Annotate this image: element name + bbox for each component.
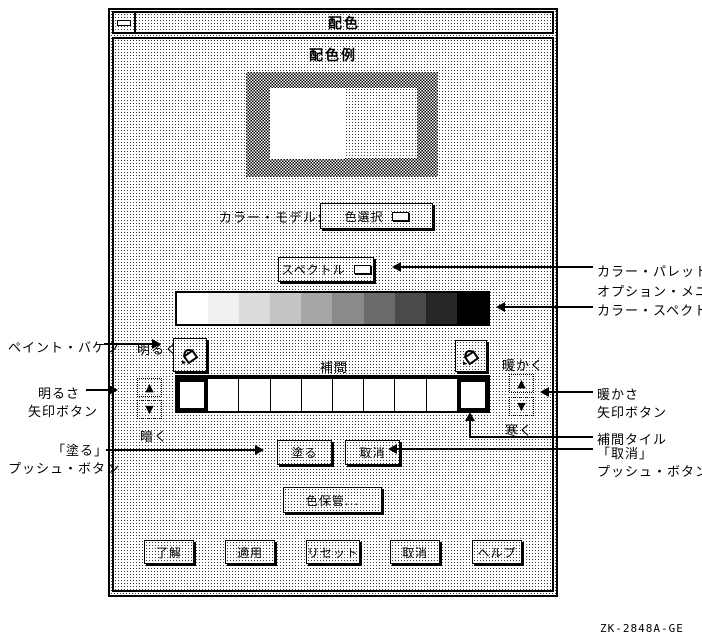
- interp-tile[interactable]: [364, 379, 394, 411]
- up-arrow-icon: ▲: [145, 382, 153, 393]
- callout-arrow-icon: [392, 262, 401, 272]
- annotation-warmth-arrows-line2: 矢印ボタン: [597, 402, 667, 421]
- warmth-up-button[interactable]: ▲: [509, 374, 534, 393]
- color-model-value: 色選択: [344, 208, 383, 225]
- annotation-paint-bucket: ペイント・バケツ: [8, 337, 120, 356]
- spectrum-segment[interactable]: [239, 293, 270, 324]
- spectrum-segment[interactable]: [208, 293, 239, 324]
- paint-bucket-button-right[interactable]: [455, 340, 487, 372]
- callout-line: [397, 448, 593, 450]
- callout-arrow-icon: [388, 444, 397, 454]
- spectrum-segment[interactable]: [177, 293, 208, 324]
- window-title: 配色: [136, 13, 552, 33]
- brightness-up-button[interactable]: ▲: [137, 378, 162, 397]
- color-sample-background: [345, 88, 417, 158]
- color-model-option-menu[interactable]: 色選択: [320, 203, 433, 229]
- figure-id: ZK-2848A-GE: [600, 622, 684, 635]
- callout-line: [505, 306, 593, 308]
- color-model-label: カラー・モデル:: [219, 207, 322, 226]
- interp-tile[interactable]: [239, 379, 269, 411]
- callout-line: [469, 436, 593, 438]
- down-arrow-icon: ▼: [517, 401, 525, 412]
- color-sample-foreground: [270, 88, 345, 159]
- interp-tile[interactable]: [271, 379, 301, 411]
- window-menu-button[interactable]: [114, 13, 136, 32]
- callout-line: [104, 343, 152, 345]
- interp-tile[interactable]: [302, 379, 332, 411]
- spectrum-segment[interactable]: [301, 293, 332, 324]
- interp-label: 補間: [320, 357, 348, 376]
- up-arrow-icon: ▲: [517, 378, 525, 389]
- callout-line: [549, 391, 593, 393]
- option-menu-glyph: [392, 212, 409, 221]
- window-menu-icon: [117, 20, 131, 26]
- callout-arrow-icon: [540, 387, 549, 397]
- interp-tile[interactable]: [177, 379, 207, 411]
- interp-tile[interactable]: [333, 379, 363, 411]
- apply-button[interactable]: 適用: [225, 540, 275, 564]
- annotation-palette-menu-line1: カラー・パレット: [597, 261, 702, 280]
- callout-arrow-icon: [255, 445, 264, 455]
- paint-bucket-icon: [178, 343, 202, 367]
- figure-canvas: 配色 配色例 カラー・モデル: 色選択 スペクトル 明るく 補間: [0, 0, 702, 642]
- callout-line: [401, 266, 593, 268]
- warmer-label: 暖かく: [502, 355, 544, 374]
- ok-button[interactable]: 了解: [144, 540, 194, 564]
- darker-label: 暗く: [140, 426, 168, 445]
- paint-bucket-button-left[interactable]: [173, 338, 207, 372]
- spectrum-segment[interactable]: [332, 293, 363, 324]
- reset-button[interactable]: リセット: [306, 540, 360, 564]
- palette-option-menu[interactable]: スペクトル: [278, 257, 374, 282]
- brightness-down-button[interactable]: ▼: [137, 400, 162, 419]
- callout-arrow-icon: [109, 385, 118, 395]
- annotation-cancel-push-line1: 「取消」: [597, 443, 653, 462]
- cancel-button[interactable]: 取消: [390, 540, 440, 564]
- spectrum-segment[interactable]: [364, 293, 395, 324]
- dialog-heading: 配色例: [112, 45, 554, 65]
- spectrum-segment[interactable]: [457, 293, 488, 324]
- callout-arrow-icon: [496, 302, 505, 312]
- spectrum-segment[interactable]: [270, 293, 301, 324]
- help-button[interactable]: ヘルプ: [472, 540, 522, 564]
- annotation-palette-menu-line2: オプション・メニュー: [597, 281, 702, 300]
- annotation-brightness-arrows-line2: 矢印ボタン: [28, 401, 98, 420]
- interp-tile[interactable]: [395, 379, 425, 411]
- annotation-color-spectrum: カラー・スペクトル: [597, 300, 702, 319]
- interp-tiles: [175, 375, 490, 413]
- warmth-down-button[interactable]: ▼: [509, 397, 534, 416]
- interp-tile[interactable]: [458, 379, 488, 411]
- callout-arrow-icon: [152, 339, 161, 349]
- color-spectrum[interactable]: [175, 291, 490, 326]
- option-menu-glyph: [354, 265, 371, 274]
- palette-value: スペクトル: [281, 261, 345, 278]
- paint-bucket-icon: [459, 344, 483, 368]
- callout-line: [106, 449, 255, 451]
- interp-tile[interactable]: [427, 379, 457, 411]
- paint-button[interactable]: 塗る: [277, 440, 332, 465]
- title-bar[interactable]: 配色: [112, 11, 554, 34]
- callout-line: [86, 389, 109, 391]
- annotation-brightness-arrows-line1: 明るさ: [38, 383, 80, 402]
- annotation-warmth-arrows-line1: 暖かさ: [597, 384, 639, 403]
- save-colors-button[interactable]: 色保管...: [283, 487, 382, 513]
- spectrum-segment[interactable]: [395, 293, 426, 324]
- interp-tile[interactable]: [208, 379, 238, 411]
- annotation-paint-push-line2: プッシュ・ボタン: [8, 458, 120, 477]
- annotation-cancel-push-line2: プッシュ・ボタン: [597, 461, 702, 480]
- annotation-paint-push-line1: 「塗る」: [52, 440, 108, 459]
- spectrum-segment[interactable]: [426, 293, 457, 324]
- down-arrow-icon: ▼: [145, 404, 153, 415]
